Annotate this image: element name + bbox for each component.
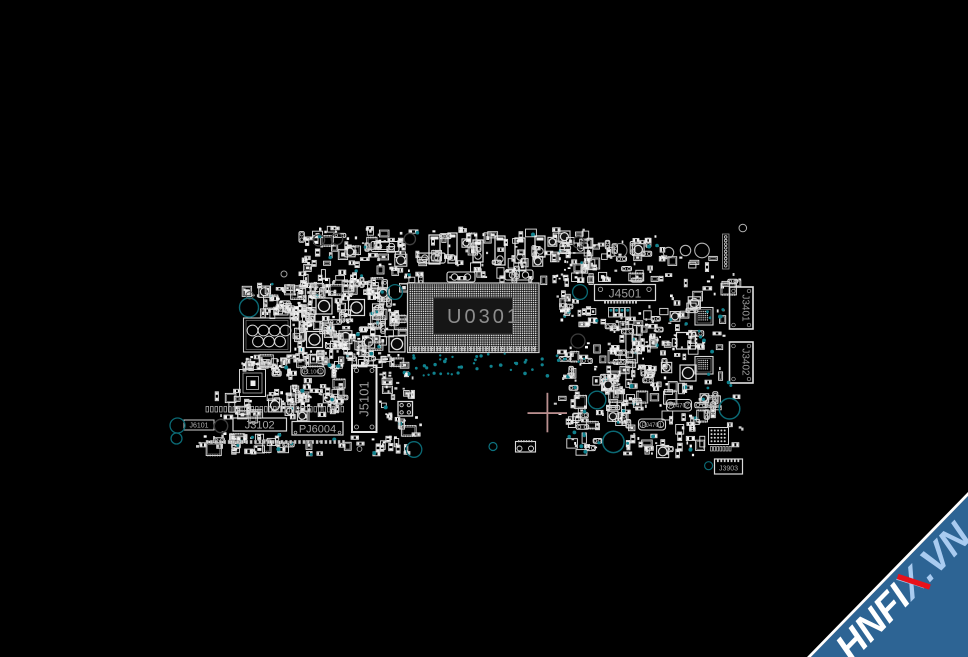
- svg-text:J3903: J3903: [719, 466, 738, 473]
- svg-text:J6101: J6101: [189, 423, 208, 430]
- svg-text:J3402: J3402: [740, 348, 751, 376]
- svg-text:J3401: J3401: [740, 294, 751, 322]
- svg-text:PJ4702: PJ4702: [669, 404, 690, 410]
- svg-text:PJ6004: PJ6004: [299, 423, 336, 435]
- svg-text:J5101: J5101: [357, 381, 372, 416]
- svg-text:U0301: U0301: [447, 306, 521, 328]
- svg-text:PJ4701: PJ4701: [642, 423, 663, 429]
- svg-text:J4501: J4501: [609, 287, 642, 301]
- svg-text:J3102: J3102: [245, 419, 275, 431]
- svg-text:PL1001: PL1001: [304, 370, 323, 376]
